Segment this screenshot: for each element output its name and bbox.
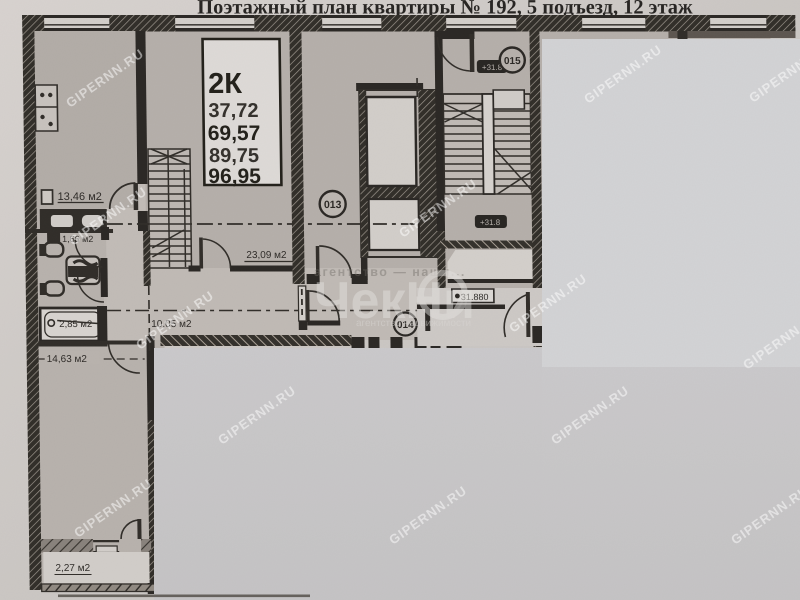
svg-text:агентство недвижимости: агентство недвижимости [356,318,471,329]
